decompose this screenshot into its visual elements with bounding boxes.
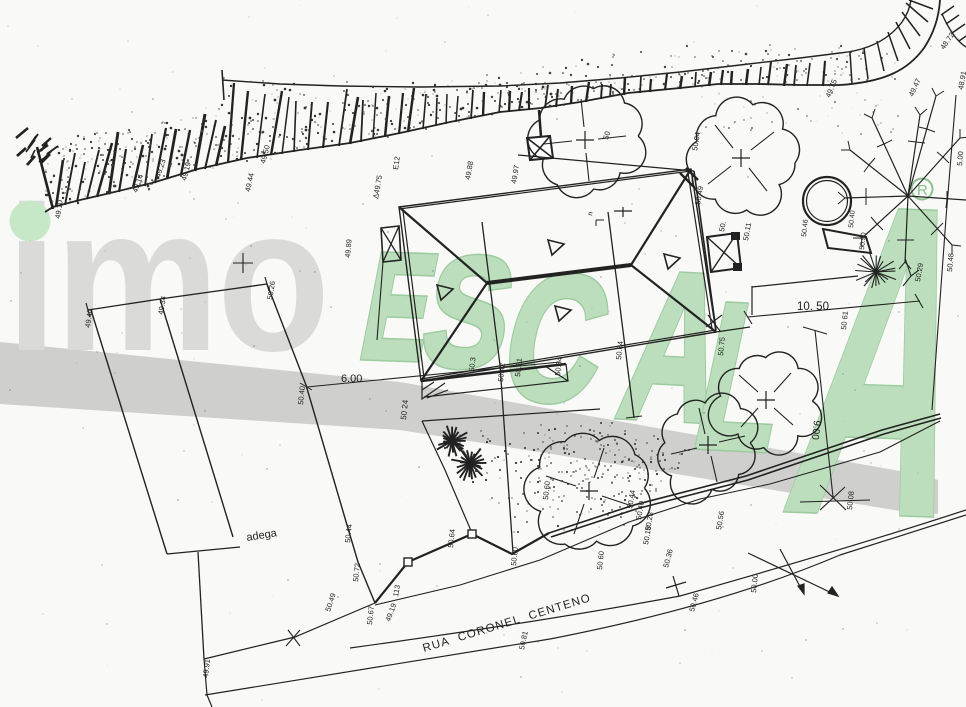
svg-text:50.56: 50.56 xyxy=(714,510,726,530)
svg-text:50.3: 50.3 xyxy=(467,357,477,372)
svg-text:49.19: 49.19 xyxy=(383,602,398,623)
svg-text:50.36: 50.36 xyxy=(661,548,675,568)
svg-text:50.49: 50.49 xyxy=(323,592,337,613)
svg-text:49.91: 49.91 xyxy=(201,659,212,679)
svg-text:imo: imo xyxy=(6,164,328,394)
svg-text:49.89: 49.89 xyxy=(343,239,354,258)
svg-text:Δ49.75: Δ49.75 xyxy=(371,174,384,199)
svg-text:50.00: 50.00 xyxy=(749,574,760,594)
svg-text:50.64: 50.64 xyxy=(614,341,625,361)
svg-text:9.00: 9.00 xyxy=(809,420,822,441)
svg-text:48.91: 48.91 xyxy=(956,70,966,90)
svg-text:49.97: 49.97 xyxy=(509,164,521,184)
svg-text:E12: E12 xyxy=(391,156,402,170)
svg-text:50.11: 50.11 xyxy=(741,222,753,242)
svg-text:10. 50: 10. 50 xyxy=(797,301,829,313)
svg-text:6.00: 6.00 xyxy=(341,373,362,385)
svg-text:50.48: 50.48 xyxy=(945,253,956,272)
svg-text:50.: 50. xyxy=(717,221,728,233)
svg-text:50.60: 50.60 xyxy=(541,481,552,501)
svg-text:50.67: 50.67 xyxy=(365,606,376,626)
svg-text:49.75: 49.75 xyxy=(824,78,839,99)
svg-text:48.72: 48.72 xyxy=(938,31,956,52)
svg-text:49.47: 49.47 xyxy=(907,77,923,98)
svg-text:50.72: 50.72 xyxy=(351,563,362,583)
svg-text:50.18: 50.18 xyxy=(641,525,653,545)
svg-text:50 60: 50 60 xyxy=(595,551,606,571)
svg-text:113: 113 xyxy=(391,584,402,597)
svg-text:50.46: 50.46 xyxy=(687,592,701,612)
svg-text:50.64: 50.64 xyxy=(446,529,457,549)
svg-text:adega: adega xyxy=(246,527,279,544)
svg-text:50.46: 50.46 xyxy=(801,219,810,237)
svg-text:5.00: 5.00 xyxy=(955,151,965,166)
svg-text:n: n xyxy=(587,211,595,216)
svg-text:50.60: 50.60 xyxy=(509,547,520,567)
svg-text:50.44: 50.44 xyxy=(343,524,354,544)
svg-text:50.81: 50.81 xyxy=(517,630,530,650)
svg-text:49.88: 49.88 xyxy=(463,160,475,180)
